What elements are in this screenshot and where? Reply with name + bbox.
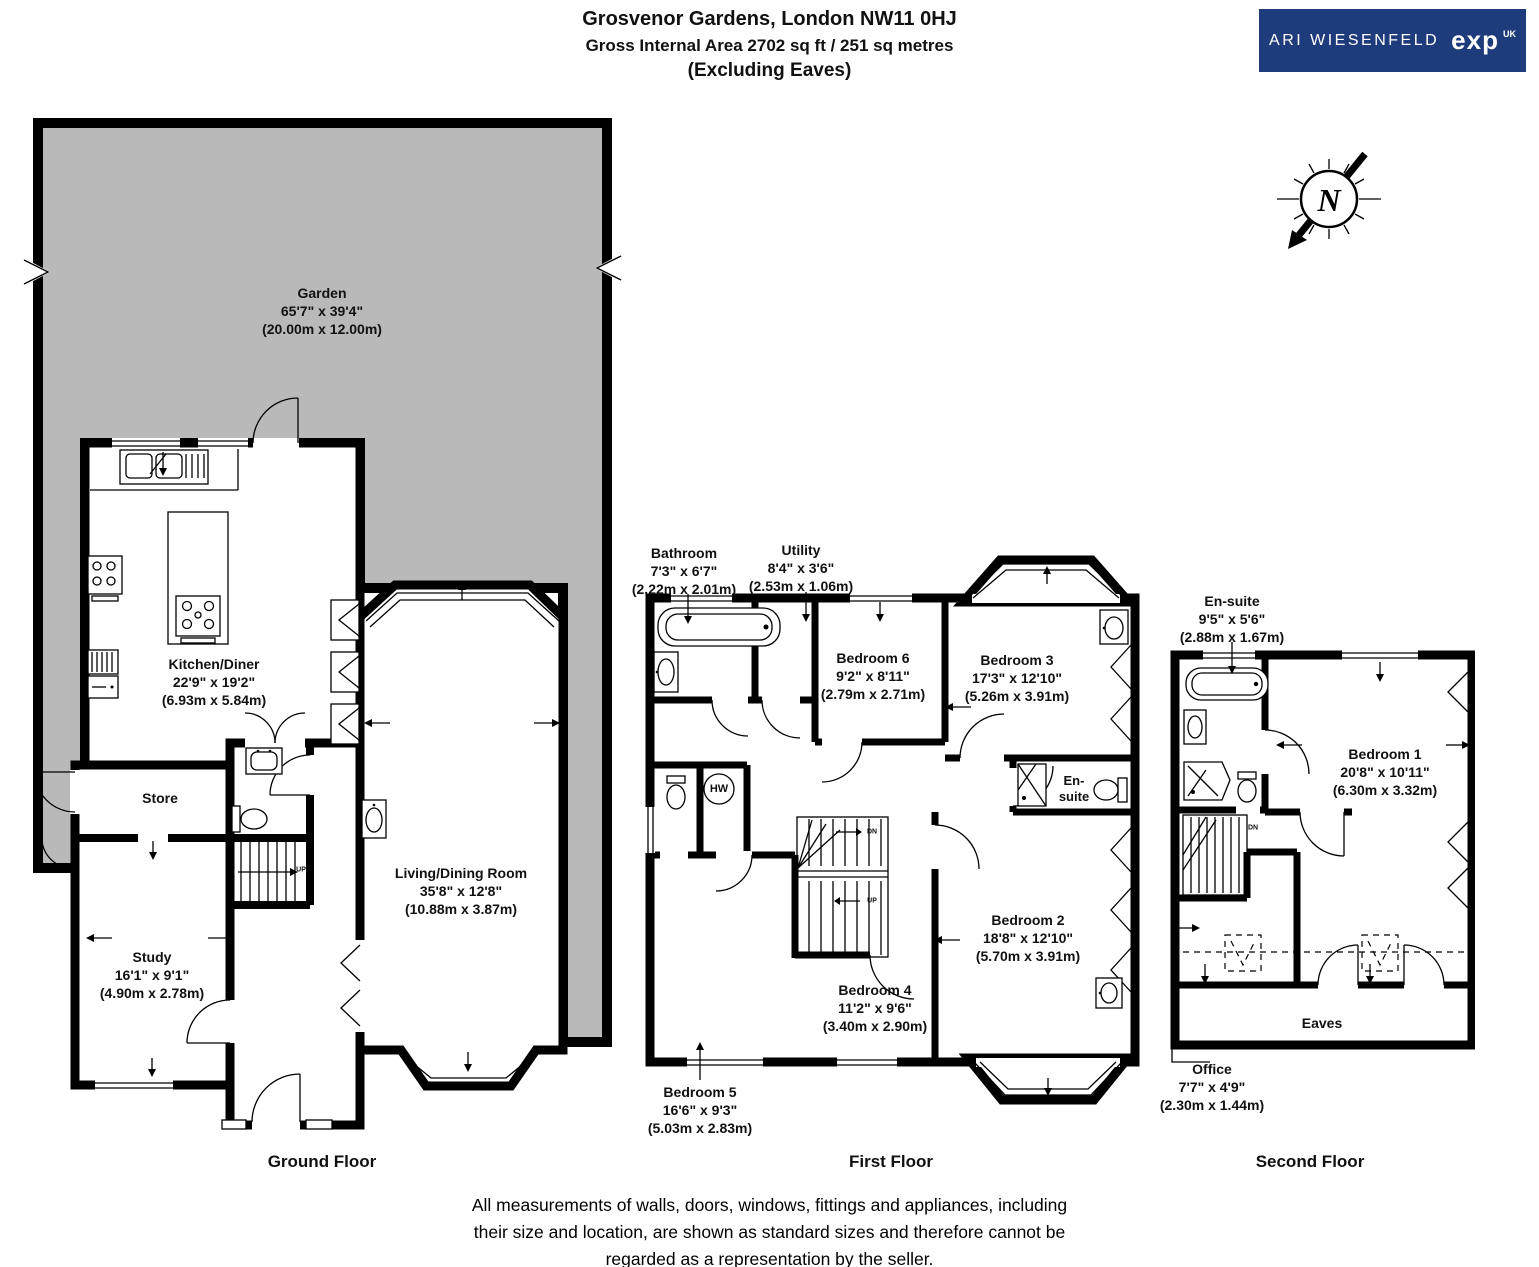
hot-water-label: HW <box>710 783 728 795</box>
kitchen-island <box>168 512 228 644</box>
living-sink <box>362 800 386 838</box>
room-label-ensuite-sf: En-suite 9'5" x 5'6" (2.88m x 1.67m) <box>1180 592 1284 646</box>
hallway-block <box>230 743 360 1125</box>
agent-name: ARI WIESENFELD <box>1269 32 1439 50</box>
room-label-ensuite-ff: En- suite <box>1059 773 1089 805</box>
room-label-eaves: Eaves <box>1302 1014 1342 1032</box>
living-wall-niches <box>331 600 359 744</box>
room-label-bedroom5: Bedroom 5 16'6" x 9'3" (5.03m x 2.83m) <box>648 1083 752 1137</box>
bedroom2-sink <box>1096 978 1122 1008</box>
ground-floor-plan <box>20 110 630 1170</box>
stairs-up-label-gf: UP <box>296 867 306 874</box>
stairs-dn-label-sf: DN <box>1248 825 1258 832</box>
second-floor-plan <box>1160 585 1475 1085</box>
bedroom3-sink <box>1100 610 1128 644</box>
room-label-utility: Utility 8'4" x 3'6" (2.53m x 1.06m) <box>749 541 853 595</box>
floor-name-ground: Ground Floor <box>268 1152 377 1172</box>
brand-logo: ARI WIESENFELD exp UK <box>1259 9 1526 72</box>
store-study-block <box>75 765 230 1085</box>
bathroom-sink <box>654 652 678 692</box>
room-label-office: Office 7'7" x 4'9" (2.30m x 1.44m) <box>1160 1060 1264 1114</box>
fridge-icon <box>88 650 118 698</box>
wc-toilet-ff <box>667 776 685 809</box>
wc-sink <box>246 748 282 774</box>
stairs-up-label-ff: UP <box>867 898 877 905</box>
floor-name-first: First Floor <box>849 1152 933 1172</box>
bathroom-bath <box>658 608 780 646</box>
room-label-kitchen-diner: Kitchen/Diner 22'9" x 19'2" (6.93m x 5.8… <box>162 655 266 709</box>
room-label-bedroom3: Bedroom 3 17'3" x 12'10" (5.26m x 3.91m) <box>965 651 1069 705</box>
stairs-dn-label-ff: DN <box>867 829 877 836</box>
floorplan-page: Grosvenor Gardens, London NW11 0HJ Gross… <box>0 0 1539 1267</box>
room-label-bedroom6: Bedroom 6 9'2" x 8'11" (2.79m x 2.71m) <box>821 649 925 703</box>
room-label-bedroom1: Bedroom 1 20'8" x 10'11" (6.30m x 3.32m) <box>1333 745 1437 799</box>
living-dining-room <box>360 585 563 1086</box>
room-label-bathroom: Bathroom 7'3" x 6'7" (2.22m x 2.01m) <box>632 544 736 598</box>
compass-north-label: N <box>1316 182 1342 218</box>
room-label-garden: Garden 65'7" x 39'4" (20.00m x 12.00m) <box>262 284 382 338</box>
brand-region: UK <box>1503 29 1516 39</box>
room-label-store: Store <box>142 789 178 807</box>
compass-icon: N <box>1272 142 1387 257</box>
room-label-bedroom2: Bedroom 2 18'8" x 12'10" (5.70m x 3.91m) <box>976 911 1080 965</box>
disclaimer: All measurements of walls, doors, window… <box>0 1192 1539 1267</box>
brand-exp-logo: exp <box>1451 25 1499 56</box>
room-label-study: Study 16'1" x 9'1" (4.90m x 2.78m) <box>100 948 204 1002</box>
room-label-living-dining: Living/Dining Room 35'8" x 12'8" (10.88m… <box>395 864 527 918</box>
floor-name-second: Second Floor <box>1256 1152 1365 1172</box>
hob-icon <box>88 556 122 601</box>
room-label-bedroom4: Bedroom 4 11'2" x 9'6" (3.40m x 2.90m) <box>823 981 927 1035</box>
